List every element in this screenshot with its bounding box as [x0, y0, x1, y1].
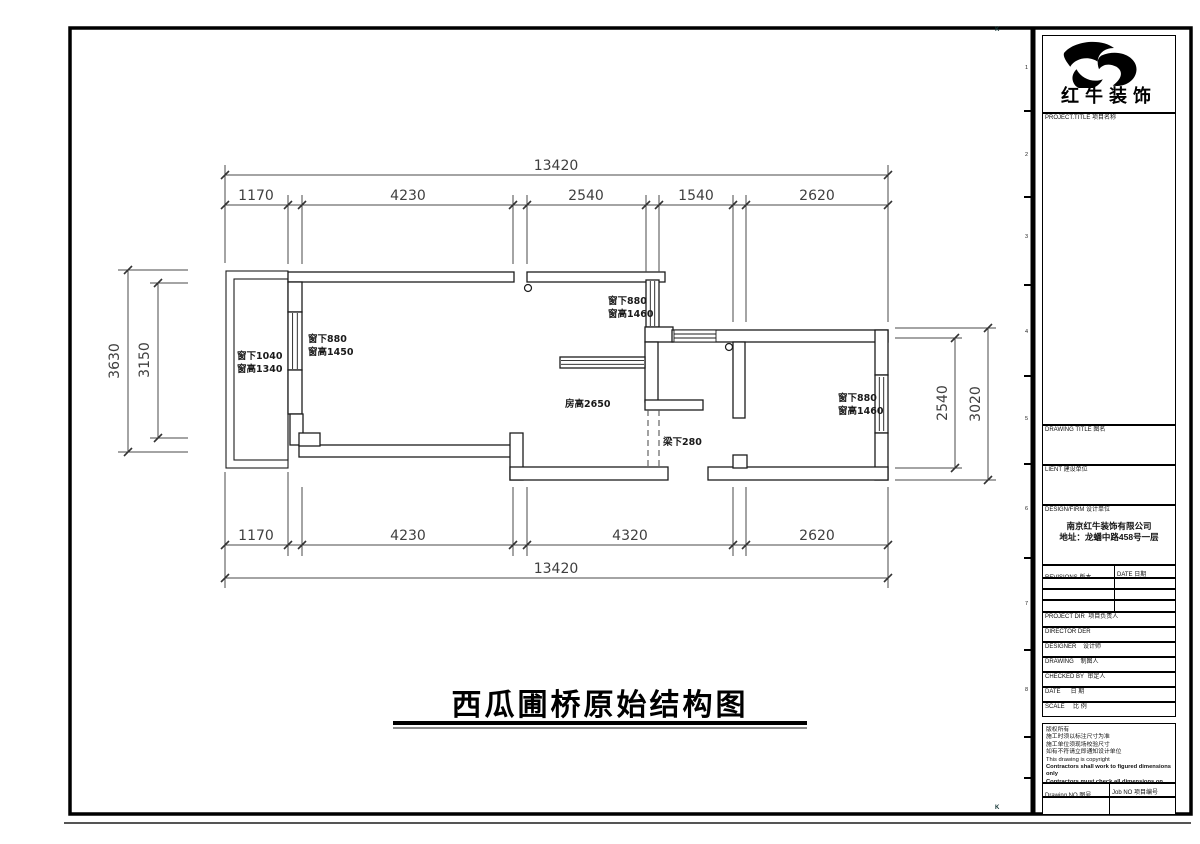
- zone-number: 4: [1014, 329, 1028, 335]
- note-line: 施工时须以标注尺寸为准: [1046, 734, 1172, 741]
- zone-number: 2: [1014, 152, 1028, 158]
- dim-right-outer: 3020: [968, 386, 984, 422]
- zone-number: 8: [1014, 687, 1028, 693]
- row-label-en: DATE: [1045, 689, 1061, 695]
- dim-top-total: 13420: [534, 158, 579, 174]
- dims-top: [221, 165, 892, 322]
- company-address: 地址：龙蟠中路458号一层: [1043, 532, 1175, 543]
- plan-labels: 窗下1040 窗高1340 窗下880 窗高1450 窗下880 窗高1460 …: [237, 295, 884, 448]
- walls: [288, 272, 888, 480]
- zone-tick: [1024, 649, 1033, 651]
- zone-number: 6: [1014, 506, 1028, 512]
- company-logo-name: 红牛装饰: [1043, 82, 1175, 108]
- row-label-cn: 比 例: [1073, 704, 1087, 710]
- zone-tick: [1024, 284, 1033, 286]
- title-underline-thick: [393, 721, 807, 725]
- row-label-en: DIRECTOR DER: [1045, 629, 1091, 635]
- revisions-row: [1042, 578, 1176, 589]
- row-label-cn: 审定人: [1087, 674, 1105, 680]
- dims-top-text: 13420 1170 4230 2540 1540 2620: [238, 158, 835, 204]
- zone-tick: [1024, 375, 1033, 377]
- logo-box: 红牛装饰: [1042, 35, 1176, 113]
- row-designer: DESIGNER 设计师: [1042, 642, 1176, 657]
- note-line: This drawing is copyright: [1046, 757, 1172, 764]
- balcony-window-label-2: 窗高1340: [237, 363, 283, 375]
- drawing-sheet: 13420 1170 4230 2540 1540 2620: [0, 0, 1200, 844]
- zone-number: 5: [1014, 416, 1028, 422]
- dim-left-inner: 3150: [137, 342, 153, 378]
- dim-bot-seg-1: 1170: [238, 528, 274, 544]
- drawing-no-row: Drawing NO 图号 Job NO 项目编号: [1042, 783, 1176, 797]
- drawing-title-box: DRAWING TITLE 图名: [1042, 425, 1176, 465]
- revisions-row: [1042, 589, 1176, 600]
- title-underline-thin: [393, 727, 807, 729]
- row-drawing: DRAWING 制图人: [1042, 657, 1176, 672]
- company-logo-icon: [1043, 38, 1175, 88]
- dim-top-seg-3: 2540: [568, 188, 604, 204]
- row-label-en: DRAWING: [1045, 659, 1074, 665]
- dim-left-outer: 3630: [107, 343, 123, 379]
- job-no-label: Job NO 项目编号: [1110, 789, 1160, 797]
- dim-top-seg-1: 1170: [238, 188, 274, 204]
- row-checked-by: CHECKED BY 审定人: [1042, 672, 1176, 687]
- row-label-cn: 设计师: [1083, 644, 1101, 650]
- row-date: DATE 日 期: [1042, 687, 1176, 702]
- dim-bot-total: 13420: [534, 561, 579, 577]
- drawing-title-label: DRAWING TITLE 图名: [1043, 426, 1175, 435]
- row-label-cn: 日 期: [1071, 689, 1085, 695]
- row-label-en: PROJECT DIR: [1045, 614, 1085, 620]
- note-line-bold: Contractors shall work to figured dimens…: [1046, 764, 1172, 779]
- zone-tick: [1024, 196, 1033, 198]
- right-window-label-2: 窗高1460: [838, 405, 884, 417]
- zone-number: 1: [1014, 65, 1028, 71]
- row-label-en: DESIGNER: [1045, 644, 1076, 650]
- dim-bot-seg-3: 4320: [612, 528, 648, 544]
- design-firm-label: DESIGN/FIRM 设计单位: [1043, 506, 1175, 515]
- company-name: 南京红牛装饰有限公司: [1043, 515, 1175, 532]
- row-scale: SCALE 比 例: [1042, 702, 1176, 717]
- zone-number: 7: [1014, 601, 1028, 607]
- row-label-cn: 制图人: [1080, 659, 1098, 665]
- dims-right-text: 2540 3020: [935, 385, 984, 422]
- dim-top-seg-5: 2620: [799, 188, 835, 204]
- row-label-en: SCALE: [1045, 704, 1065, 710]
- zone-tick: [1024, 557, 1033, 559]
- revisions-row: [1042, 600, 1176, 612]
- mid-window-label-2: 窗高1460: [608, 308, 654, 320]
- dims-bottom-text: 1170 4230 4320 2620 13420: [238, 528, 835, 577]
- zone-letter-top: K: [995, 27, 999, 33]
- left-window-label-1: 窗下880: [308, 333, 347, 345]
- right-window-label-1: 窗下880: [838, 392, 877, 404]
- project-title-box: PROJECT.TITLE 项目名称: [1042, 113, 1176, 425]
- dim-bot-seg-4: 2620: [799, 528, 835, 544]
- beam-dashed-lines: [648, 410, 659, 467]
- project-title-label: PROJECT.TITLE 项目名称: [1043, 114, 1175, 123]
- zone-number: 3: [1014, 234, 1028, 240]
- beam-label: 梁下280: [662, 436, 702, 448]
- zone-tick: [1024, 110, 1033, 112]
- copyright-notes-box: 版权所有 施工时须以标注尺寸为准 施工单位须现场校验尺寸 如有不符请立即通知设计…: [1042, 723, 1176, 783]
- left-window-label-2: 窗高1450: [308, 346, 354, 358]
- row-label-en: CHECKED BY: [1045, 674, 1084, 680]
- revisions-header: REVISIONS 版本 DATE 日期: [1042, 565, 1176, 578]
- room-height-label: 房高2650: [565, 398, 611, 410]
- balcony-window-label-1: 窗下1040: [237, 350, 283, 362]
- client-box: LIENT 建设单位: [1042, 465, 1176, 505]
- row-project-dir: PROJECT DIR 项目负责人: [1042, 612, 1176, 627]
- zone-letter-bottom: K: [995, 805, 999, 811]
- dim-top-seg-4: 1540: [678, 188, 714, 204]
- row-director: DIRECTOR DER: [1042, 627, 1176, 642]
- zone-tick: [1024, 777, 1033, 779]
- drawing-title: 西瓜圃桥原始结构图: [390, 680, 810, 724]
- dim-right-inner: 2540: [935, 385, 951, 421]
- dims-left-text: 3630 3150: [107, 342, 153, 379]
- dims-left: [118, 266, 188, 456]
- zone-tick: [1024, 736, 1033, 738]
- mid-window-label-1: 窗下880: [608, 295, 647, 307]
- dim-bot-seg-2: 4230: [390, 528, 426, 544]
- design-firm-box: DESIGN/FIRM 设计单位 南京红牛装饰有限公司 地址：龙蟠中路458号一…: [1042, 505, 1176, 565]
- note-line: 如有不符请立即通知设计单位: [1046, 749, 1172, 756]
- drawing-no-value-row: [1042, 797, 1176, 815]
- client-label: LIENT 建设单位: [1043, 466, 1175, 475]
- row-label-cn: 项目负责人: [1088, 614, 1118, 620]
- dim-top-seg-2: 4230: [390, 188, 426, 204]
- zone-tick: [1024, 463, 1033, 465]
